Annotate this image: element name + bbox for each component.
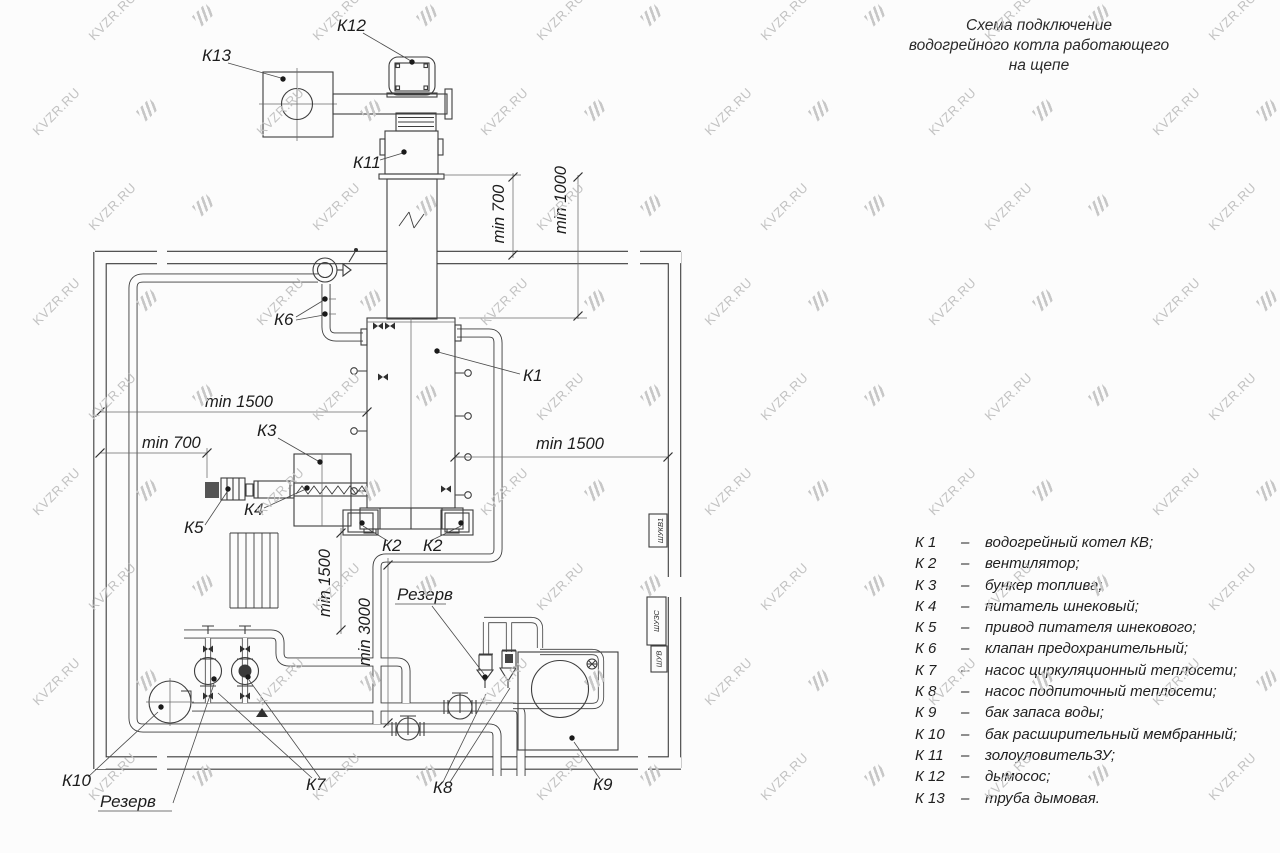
legend-text: – bbox=[961, 619, 985, 636]
callouts: К13 К12 К11 К6 К1 К3 К4 К5 К2 К2 К10 К7 … bbox=[62, 16, 613, 811]
pipeline-fittings bbox=[256, 693, 476, 740]
cabinet-label-1: ШУКВ1 bbox=[656, 518, 665, 543]
legend-item: К 7–насос циркуляционный теплосети; bbox=[915, 662, 1237, 683]
legend-text: насос циркуляционный теплосети; bbox=[985, 662, 1237, 679]
label-k7: К7 bbox=[306, 775, 326, 794]
legend-text: водогрейный котел КВ; bbox=[985, 534, 1153, 551]
label-k8: К8 bbox=[433, 778, 453, 797]
legend-text: бак расширительный мембранный; bbox=[985, 726, 1237, 743]
legend-text: К 3 bbox=[915, 577, 961, 594]
label-k4: К4 bbox=[244, 500, 263, 519]
legend-text: – bbox=[961, 577, 985, 594]
legend-text: К 7 bbox=[915, 662, 961, 679]
chimney-k13 bbox=[259, 68, 337, 141]
legend-text: насос подпиточный теплосети; bbox=[985, 683, 1217, 700]
label-k10: К10 bbox=[62, 771, 91, 790]
legend-item: К 3–бункер топлива; bbox=[915, 577, 1237, 598]
legend-text: К 12 bbox=[915, 768, 961, 785]
legend-text: К 11 bbox=[915, 747, 961, 764]
ash-collector-k11 bbox=[379, 131, 444, 179]
legend-text: К 1 bbox=[915, 534, 961, 551]
boiler-k1 bbox=[351, 318, 472, 533]
label-k3: К3 bbox=[257, 421, 277, 440]
legend-text: – bbox=[961, 704, 985, 721]
label-k6: К6 bbox=[274, 310, 294, 329]
label-k1: К1 bbox=[523, 366, 542, 385]
legend-text: бак запаса воды; bbox=[985, 704, 1104, 721]
label-k13: К13 bbox=[202, 46, 231, 65]
dim-min700-stack: min 700 bbox=[490, 184, 508, 244]
legend-text: привод питателя шнекового; bbox=[985, 619, 1197, 636]
flex-connector bbox=[396, 113, 436, 131]
fan-k2-right bbox=[441, 510, 473, 535]
expansion-tank-k10 bbox=[146, 678, 194, 726]
screw-feeder-k4 bbox=[254, 481, 367, 498]
legend-text: клапан предохранительный; bbox=[985, 640, 1188, 657]
legend-text: – bbox=[961, 790, 985, 807]
dim-min1500-left: min 1500 bbox=[205, 393, 274, 411]
legend-text: – bbox=[961, 598, 985, 615]
label-reserve-bottom: Резерв bbox=[100, 792, 156, 811]
legend-text: труба дымовая. bbox=[985, 790, 1100, 807]
label-k11: К11 bbox=[353, 153, 381, 172]
legend-item: К 1–водогрейный котел КВ; bbox=[915, 534, 1237, 555]
legend-text: К 13 bbox=[915, 790, 961, 807]
title-line-3: на щепе bbox=[903, 56, 1175, 76]
legend-text: К 6 bbox=[915, 640, 961, 657]
legend-item: К 10–бак расширительный мембранный; bbox=[915, 726, 1237, 747]
flue-stack bbox=[387, 179, 437, 319]
drawing-title: Схема подключение водогрейного котла раб… bbox=[903, 16, 1175, 76]
legend-text: – bbox=[961, 747, 985, 764]
dim-min3000-mid: min 3000 bbox=[356, 597, 374, 666]
label-k5: К5 bbox=[184, 518, 204, 537]
legend-text: – bbox=[961, 768, 985, 785]
legend-text: К 8 bbox=[915, 683, 961, 700]
feed-pumps-k8 bbox=[477, 650, 516, 688]
legend-text: – bbox=[961, 683, 985, 700]
legend-text: – bbox=[961, 726, 985, 743]
legend-text: К 9 bbox=[915, 704, 961, 721]
legend-text: К 4 bbox=[915, 598, 961, 615]
dim-min1500-right: min 1500 bbox=[536, 435, 605, 453]
legend-item: К 13–труба дымовая. bbox=[915, 790, 1237, 811]
dimension-lines: min 1500 min 700 min 1500 min 700 min 10… bbox=[96, 165, 673, 727]
legend-item: К 12–дымосос; bbox=[915, 768, 1237, 789]
label-k12: К12 bbox=[337, 16, 366, 35]
legend-text: – bbox=[961, 640, 985, 657]
legend-item: К 5–привод питателя шнекового; bbox=[915, 619, 1237, 640]
legend-text: К 5 bbox=[915, 619, 961, 636]
title-line-2: водогрейного котла работающего bbox=[903, 36, 1175, 56]
legend-text: бункер топлива; bbox=[985, 577, 1103, 594]
legend-text: вентилятор; bbox=[985, 555, 1080, 572]
label-k9: К9 bbox=[593, 775, 613, 794]
page: { "title": {"lines": ["Схема подключение… bbox=[0, 0, 1280, 853]
legend-text: золоуловительЗУ; bbox=[985, 747, 1115, 764]
control-cabinets: ШУКВ1 ШУЗС ШУВ bbox=[647, 514, 667, 672]
cabinet-label-3: ШУВ bbox=[655, 651, 664, 668]
legend-item: К 11–золоуловительЗУ; bbox=[915, 747, 1237, 768]
cabinet-label-2: ШУЗС bbox=[652, 610, 661, 632]
legend: К 1–водогрейный котел КВ;К 2–вентилятор;… bbox=[915, 534, 1237, 811]
legend-item: К 6–клапан предохранительный; bbox=[915, 640, 1237, 661]
legend-text: К 2 bbox=[915, 555, 961, 572]
legend-text: питатель шнековый; bbox=[985, 598, 1139, 615]
stairs bbox=[230, 533, 278, 608]
legend-text: – bbox=[961, 534, 985, 551]
label-k2-left: К2 bbox=[382, 536, 402, 555]
dim-min1500-mid: min 1500 bbox=[316, 548, 334, 617]
title-line-1: Схема подключение bbox=[903, 16, 1175, 36]
dim-min700-left: min 700 bbox=[142, 434, 202, 452]
label-k2-right: К2 bbox=[423, 536, 443, 555]
legend-text: – bbox=[961, 662, 985, 679]
legend-item: К 9–бак запаса воды; bbox=[915, 704, 1237, 725]
legend-item: К 2–вентилятор; bbox=[915, 555, 1237, 576]
legend-text: К 10 bbox=[915, 726, 961, 743]
legend-item: К 8–насос подпиточный теплосети; bbox=[915, 683, 1237, 704]
legend-text: – bbox=[961, 555, 985, 572]
dim-min1000-stack: min 1000 bbox=[552, 165, 570, 234]
label-reserve-top: Резерв bbox=[397, 585, 453, 604]
legend-text: дымосос; bbox=[985, 768, 1050, 785]
legend-item: К 4–питатель шнековый; bbox=[915, 598, 1237, 619]
